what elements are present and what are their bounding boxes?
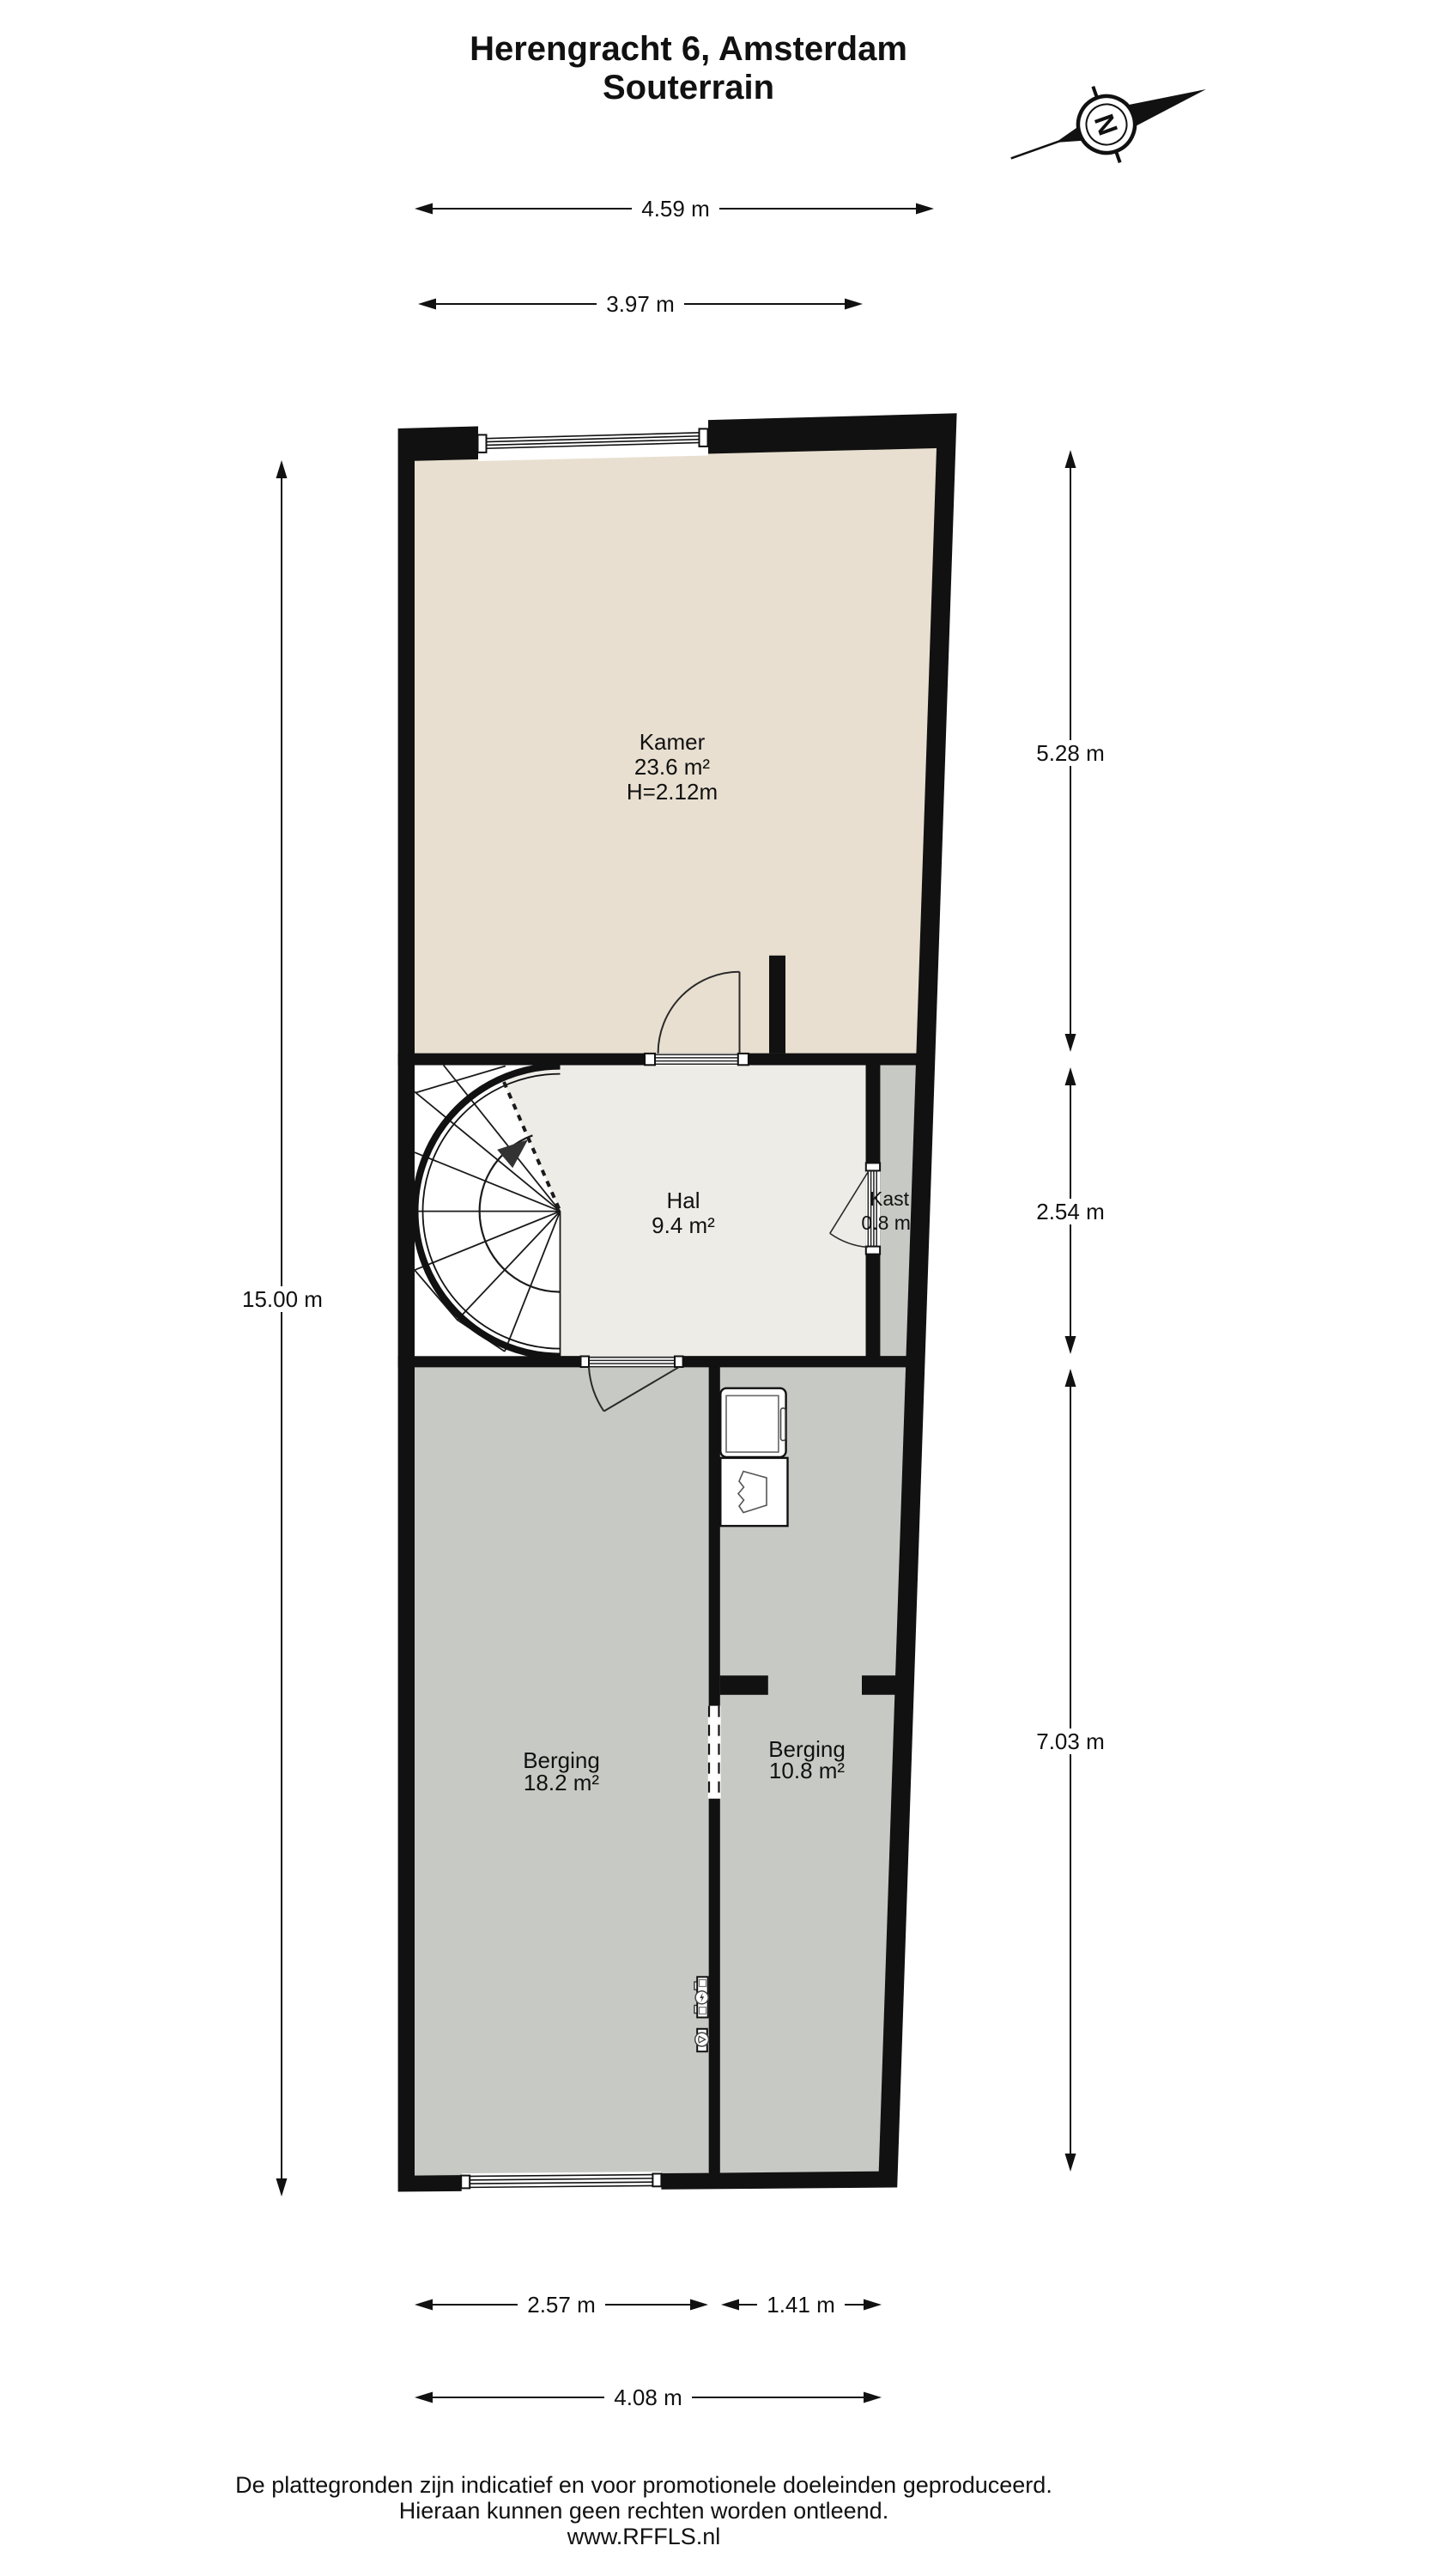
svg-text:H=2.12m: H=2.12m [627,779,718,805]
svg-text:2.57 m: 2.57 m [527,2292,596,2318]
svg-text:23.6 m²: 23.6 m² [634,754,710,780]
svg-text:18.2 m²: 18.2 m² [524,1770,599,1795]
svg-text:Herengracht 6, Amsterdam: Herengracht 6, Amsterdam [470,30,907,68]
svg-text:1.41 m: 1.41 m [767,2292,835,2318]
svg-text:Hieraan kunnen geen rechten wo: Hieraan kunnen geen rechten worden ontle… [399,2498,888,2524]
svg-text:9.4 m²: 9.4 m² [652,1212,715,1238]
svg-text:Kamer: Kamer [640,729,706,755]
svg-text:10.8 m²: 10.8 m² [769,1758,845,1783]
svg-text:4.59 m: 4.59 m [641,196,710,222]
svg-text:Kast: Kast [870,1188,910,1210]
svg-text:15.00 m: 15.00 m [242,1286,323,1312]
svg-text:Hal: Hal [666,1188,700,1213]
svg-text:4.08 m: 4.08 m [614,2385,682,2410]
svg-text:3.97 m: 3.97 m [606,291,675,317]
svg-text:De plattegronden zijn indicati: De plattegronden zijn indicatief en voor… [235,2472,1052,2498]
svg-text:0.8 m²: 0.8 m² [861,1212,918,1234]
svg-text:7.03 m: 7.03 m [1036,1728,1105,1754]
svg-text:2.54 m: 2.54 m [1036,1199,1105,1224]
svg-text:5.28 m: 5.28 m [1036,740,1105,766]
svg-text:www.RFFLS.nl: www.RFFLS.nl [567,2524,721,2549]
svg-text:Souterrain: Souterrain [603,69,774,106]
